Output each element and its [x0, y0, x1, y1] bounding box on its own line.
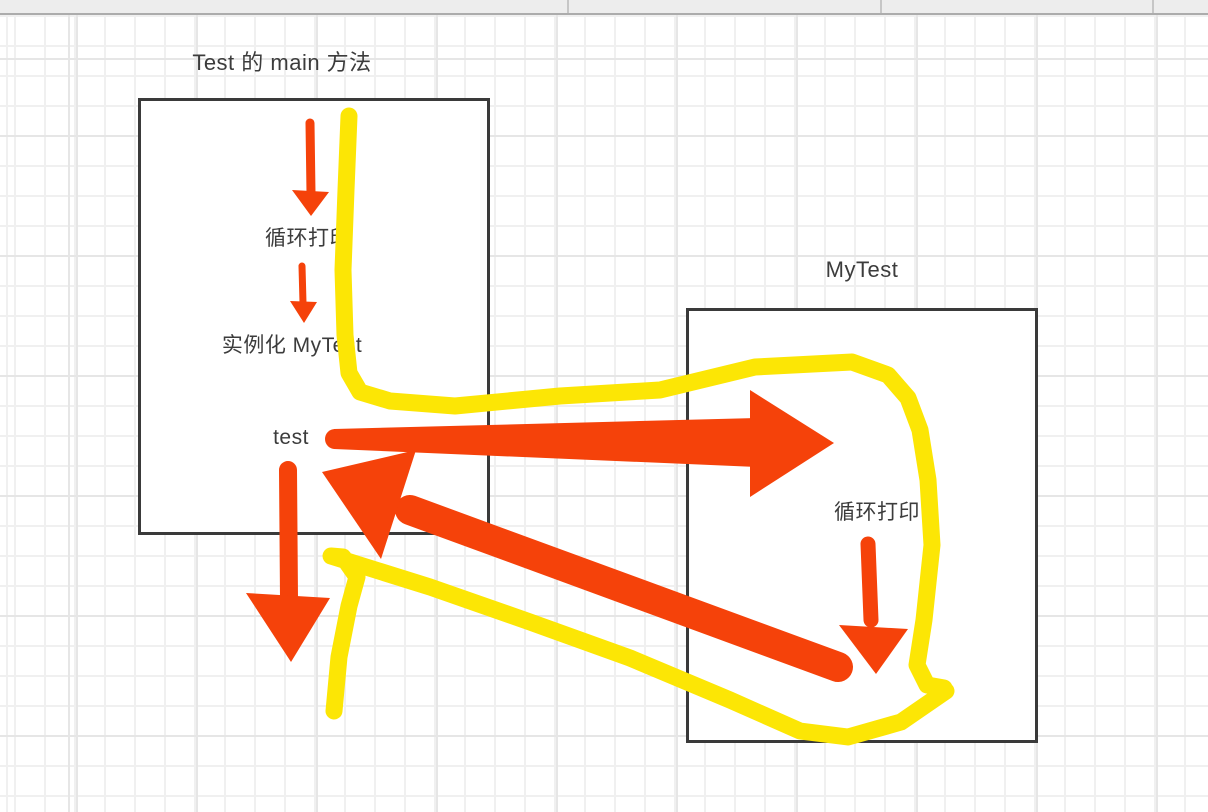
test-main-box[interactable] — [138, 98, 490, 535]
test-step-instantiate-mytest[interactable]: 实例化 MyTest — [222, 329, 362, 359]
top-strip-divider — [880, 0, 882, 13]
test-box-title[interactable]: Test 的 main 方法 — [192, 45, 371, 77]
app-top-strip — [0, 0, 1208, 15]
top-strip-divider — [1152, 0, 1154, 13]
mytest-box-title[interactable]: MyTest — [826, 257, 899, 283]
whiteboard-stage: Test 的 main 方法 MyTest 循环打印 实例化 MyTest te… — [0, 0, 1208, 812]
top-strip-divider — [567, 0, 569, 13]
mytest-step-loop-print[interactable]: 循环打印 — [834, 496, 920, 526]
test-step-loop-print[interactable]: 循环打印 — [265, 222, 351, 252]
test-step-test[interactable]: test — [273, 426, 309, 450]
